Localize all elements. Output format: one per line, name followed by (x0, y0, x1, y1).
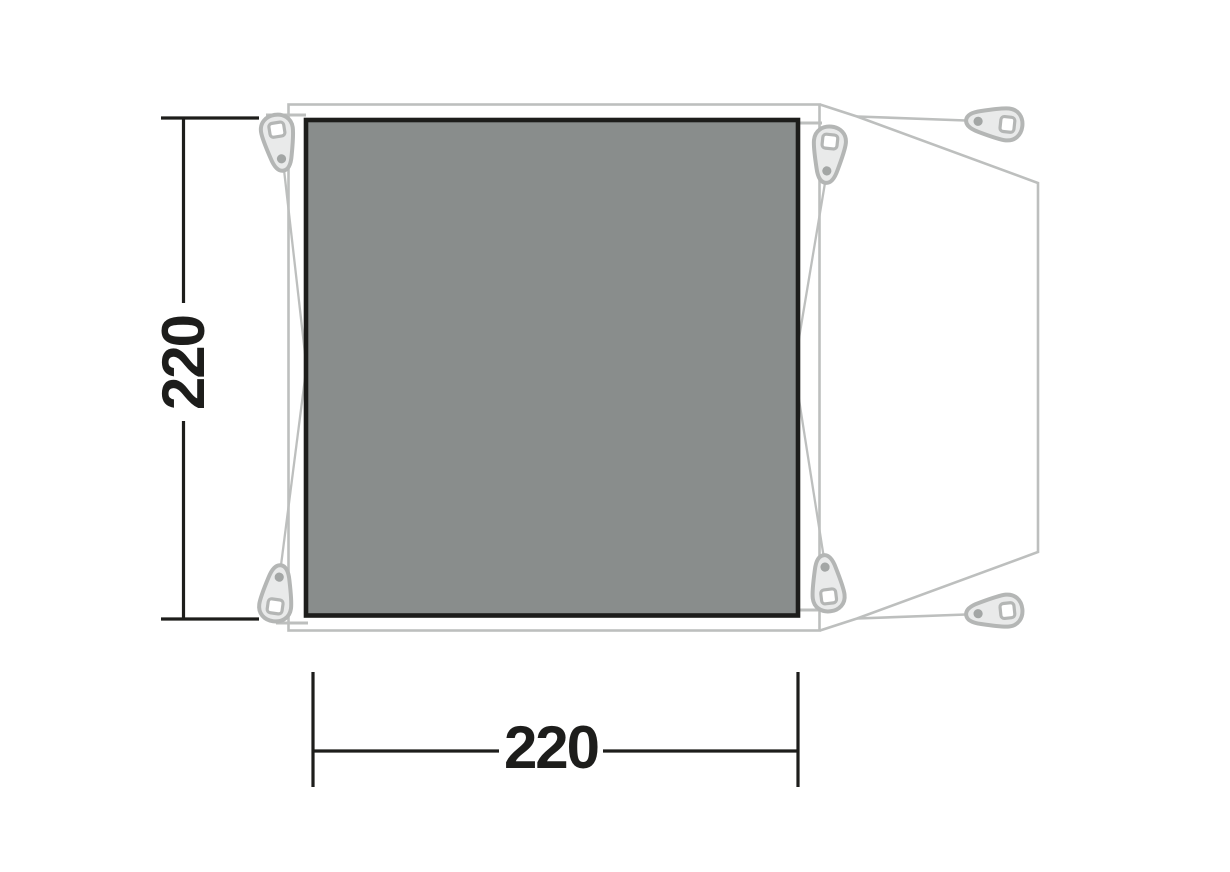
porch-outline (820, 105, 1038, 631)
peg-icon-guy-top-right (964, 104, 1024, 142)
footprint-rect (306, 120, 798, 616)
height-dimension-label: 220 (150, 316, 217, 410)
peg-icon-bottom-left (257, 563, 297, 623)
guy-line-bottom (857, 615, 966, 619)
peg-icon-bottom-right-inner (808, 553, 847, 613)
footprint-diagram-page: 220 220 (0, 0, 1230, 872)
peg-icon-guy-bottom-right (964, 593, 1024, 631)
peg-icon-top-right-inner (810, 125, 848, 185)
footprint-diagram: 220 220 (0, 0, 1230, 872)
guy-line-top (857, 117, 966, 121)
width-dimension-label: 220 (504, 714, 598, 781)
peg-icon-top-left (259, 112, 299, 173)
